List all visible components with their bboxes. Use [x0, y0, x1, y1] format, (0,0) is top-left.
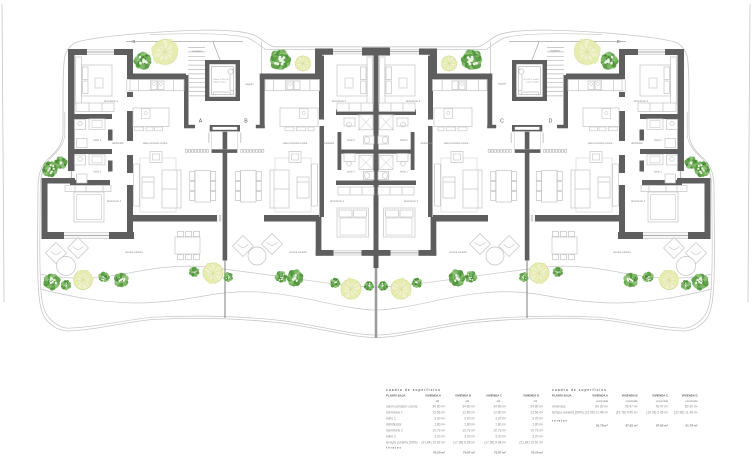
- svg-text:salón-comedor-cocina: salón-comedor-cocina: [444, 142, 469, 145]
- svg-text:cuadro de superficies: cuadro de superficies: [552, 388, 607, 392]
- svg-text:(19.78) 9.45 m²: (19.78) 9.45 m²: [646, 411, 668, 415]
- svg-text:útil: útil: [466, 399, 470, 403]
- svg-text:baño 1: baño 1: [94, 171, 102, 174]
- svg-text:dormitorio 1: dormitorio 1: [631, 199, 646, 203]
- svg-text:1.80 m²: 1.80 m²: [434, 423, 445, 427]
- svg-text:VIVIENDA D: VIVIENDA D: [523, 394, 539, 398]
- svg-text:3.20 m²: 3.20 m²: [464, 417, 475, 421]
- svg-text:salón-comedor-cocina: salón-comedor-cocina: [143, 142, 168, 145]
- svg-text:dormitorio 1: dormitorio 1: [330, 199, 345, 203]
- svg-text:34.80 m²: 34.80 m²: [432, 405, 445, 409]
- svg-text:dormitorio 2: dormitorio 2: [386, 429, 403, 433]
- svg-text:escalera: escalera: [550, 50, 560, 53]
- svg-text:PLANTA BAJA: PLANTA BAJA: [386, 394, 405, 398]
- svg-text:73.87 m²: 73.87 m²: [494, 450, 506, 454]
- svg-text:1.80 m²: 1.80 m²: [495, 423, 506, 427]
- svg-text:34.80 m²: 34.80 m²: [530, 405, 543, 409]
- svg-text:salón-comedor-cocina: salón-comedor-cocina: [283, 142, 308, 145]
- svg-text:(17.96) 8.98 m²: (17.96) 8.98 m²: [484, 441, 506, 445]
- svg-text:78.47 m²: 78.47 m²: [625, 405, 638, 409]
- svg-text:3.20 m²: 3.20 m²: [532, 435, 543, 439]
- svg-text:34.80 m²: 34.80 m²: [462, 405, 475, 409]
- svg-text:3.20 m²: 3.20 m²: [434, 435, 445, 439]
- svg-text:10.73 m²: 10.73 m²: [462, 429, 475, 433]
- svg-text:salón-comedor-cocina: salón-comedor-cocina: [386, 405, 418, 409]
- svg-text:totales: totales: [386, 445, 402, 449]
- svg-text:terraza cubierta (50%): terraza cubierta (50%): [552, 411, 584, 415]
- svg-text:escalera: escalera: [192, 50, 202, 53]
- svg-text:3.20 m²: 3.20 m²: [495, 417, 506, 421]
- svg-text:útil: útil: [436, 399, 440, 403]
- svg-text:baño 1: baño 1: [654, 171, 662, 174]
- svg-text:zaguán: zaguán: [498, 83, 507, 86]
- svg-text:1.80 m²: 1.80 m²: [532, 423, 543, 427]
- svg-text:10.73 m²: 10.73 m²: [432, 429, 445, 433]
- svg-text:13.56 m²: 13.56 m²: [432, 411, 445, 415]
- svg-text:80.30 m²: 80.30 m²: [595, 405, 608, 409]
- svg-text:91.78 m²: 91.78 m²: [596, 424, 608, 428]
- svg-text:distribuidor: distribuidor: [323, 142, 335, 145]
- svg-text:76.20 m²: 76.20 m²: [433, 450, 445, 454]
- svg-text:terraza cubierta: terraza cubierta: [289, 251, 307, 254]
- svg-text:D: D: [549, 118, 553, 124]
- svg-text:34.80 m²: 34.80 m²: [493, 405, 506, 409]
- svg-text:3.20 m²: 3.20 m²: [464, 435, 475, 439]
- svg-text:10.73 m²: 10.73 m²: [493, 429, 506, 433]
- svg-text:VIVIENDA B: VIVIENDA B: [622, 394, 638, 398]
- svg-text:12.80 m²: 12.80 m²: [462, 411, 475, 415]
- svg-text:91.78 m²: 91.78 m²: [685, 424, 697, 428]
- svg-text:baño 1: baño 1: [400, 171, 408, 174]
- svg-text:útil: útil: [497, 399, 501, 403]
- svg-text:12.80 m²: 12.80 m²: [493, 411, 506, 415]
- svg-text:totales: totales: [552, 419, 568, 423]
- svg-text:distribuidor: distribuidor: [112, 142, 124, 145]
- svg-text:terraza cubierta: terraza cubierta: [613, 251, 631, 254]
- svg-text:3.20 m²: 3.20 m²: [434, 417, 445, 421]
- svg-text:13.56 m²: 13.56 m²: [530, 411, 543, 415]
- svg-text:construida: construida: [686, 399, 699, 403]
- svg-text:(21.84) 10.92 m²: (21.84) 10.92 m²: [421, 441, 445, 445]
- svg-text:PLANTA BAJA: PLANTA BAJA: [552, 394, 571, 398]
- svg-text:Cabida: 8 pers.: Cabida: 8 pers.: [213, 82, 227, 84]
- svg-text:VIVIENDA A: VIVIENDA A: [592, 394, 608, 398]
- svg-text:dormitorio 2: dormitorio 2: [104, 99, 119, 103]
- svg-text:VIVIENDA C: VIVIENDA C: [652, 394, 668, 398]
- svg-text:dormitorio 2: dormitorio 2: [406, 99, 421, 103]
- svg-text:terraza cubierta: terraza cubierta: [125, 251, 143, 254]
- svg-text:87.82 m²: 87.82 m²: [656, 424, 668, 428]
- svg-text:VIVIENDA D: VIVIENDA D: [682, 394, 698, 398]
- svg-text:(19.78) 9.45 m²: (19.78) 9.45 m²: [616, 411, 638, 415]
- svg-text:terraza cubierta: terraza cubierta: [449, 251, 467, 254]
- svg-text:dormitorio 2: dormitorio 2: [332, 99, 347, 103]
- svg-text:zaguán: zaguán: [245, 83, 254, 86]
- svg-text:terraza cubierta (50%): terraza cubierta (50%): [386, 441, 418, 445]
- svg-text:dormitorio 1: dormitorio 1: [404, 199, 419, 203]
- svg-text:73.87 m²: 73.87 m²: [463, 450, 475, 454]
- svg-text:(17.96) 8.98 m²: (17.96) 8.98 m²: [453, 441, 475, 445]
- svg-text:(22.96) 11.48 m²: (22.96) 11.48 m²: [674, 411, 697, 415]
- svg-text:dormitorio 2: dormitorio 2: [634, 99, 649, 103]
- svg-text:dormitorio 1: dormitorio 1: [386, 411, 403, 415]
- svg-text:dormitorio 1: dormitorio 1: [107, 199, 122, 203]
- svg-text:baño 2: baño 2: [386, 435, 396, 439]
- svg-text:76.20 m²: 76.20 m²: [531, 450, 543, 454]
- svg-text:baño 2: baño 2: [400, 139, 408, 142]
- svg-text:baño 1: baño 1: [347, 171, 355, 174]
- svg-text:(21.84) 10.92 m²: (21.84) 10.92 m²: [519, 441, 543, 445]
- svg-text:útil: útil: [534, 399, 538, 403]
- svg-text:80.30 m²: 80.30 m²: [685, 405, 698, 409]
- svg-text:10.73 m²: 10.73 m²: [530, 429, 543, 433]
- svg-text:distribuidor: distribuidor: [421, 142, 433, 145]
- svg-text:distribuidor: distribuidor: [386, 423, 403, 427]
- svg-text:87.82 m²: 87.82 m²: [625, 424, 637, 428]
- svg-text:baño 1: baño 1: [386, 417, 396, 421]
- svg-text:A: A: [199, 118, 203, 124]
- svg-text:baño 2: baño 2: [347, 139, 355, 142]
- svg-text:construida: construida: [626, 399, 639, 403]
- svg-text:VIVIENDA A: VIVIENDA A: [425, 394, 441, 398]
- svg-text:(22.96) 11.48 m²: (22.96) 11.48 m²: [585, 411, 608, 415]
- svg-text:VIVIENDA C: VIVIENDA C: [486, 394, 502, 398]
- svg-text:viviendas: viviendas: [552, 405, 566, 409]
- svg-text:B: B: [244, 118, 248, 124]
- svg-text:baño 2: baño 2: [654, 139, 662, 142]
- svg-text:construida: construida: [656, 399, 669, 403]
- svg-text:3.20 m²: 3.20 m²: [495, 435, 506, 439]
- svg-text:cuadro de superficies: cuadro de superficies: [386, 388, 441, 392]
- svg-text:construida: construida: [596, 399, 609, 403]
- svg-text:3.20 m²: 3.20 m²: [532, 417, 543, 421]
- svg-text:VIVIENDA B: VIVIENDA B: [455, 394, 471, 398]
- svg-text:78.47 m²: 78.47 m²: [655, 405, 668, 409]
- svg-text:1.80 m²: 1.80 m²: [464, 423, 475, 427]
- svg-text:salón-comedor-cocina: salón-comedor-cocina: [588, 142, 613, 145]
- svg-text:C: C: [500, 118, 504, 124]
- svg-text:distribuidor: distribuidor: [631, 142, 643, 145]
- svg-text:baño 2: baño 2: [94, 139, 102, 142]
